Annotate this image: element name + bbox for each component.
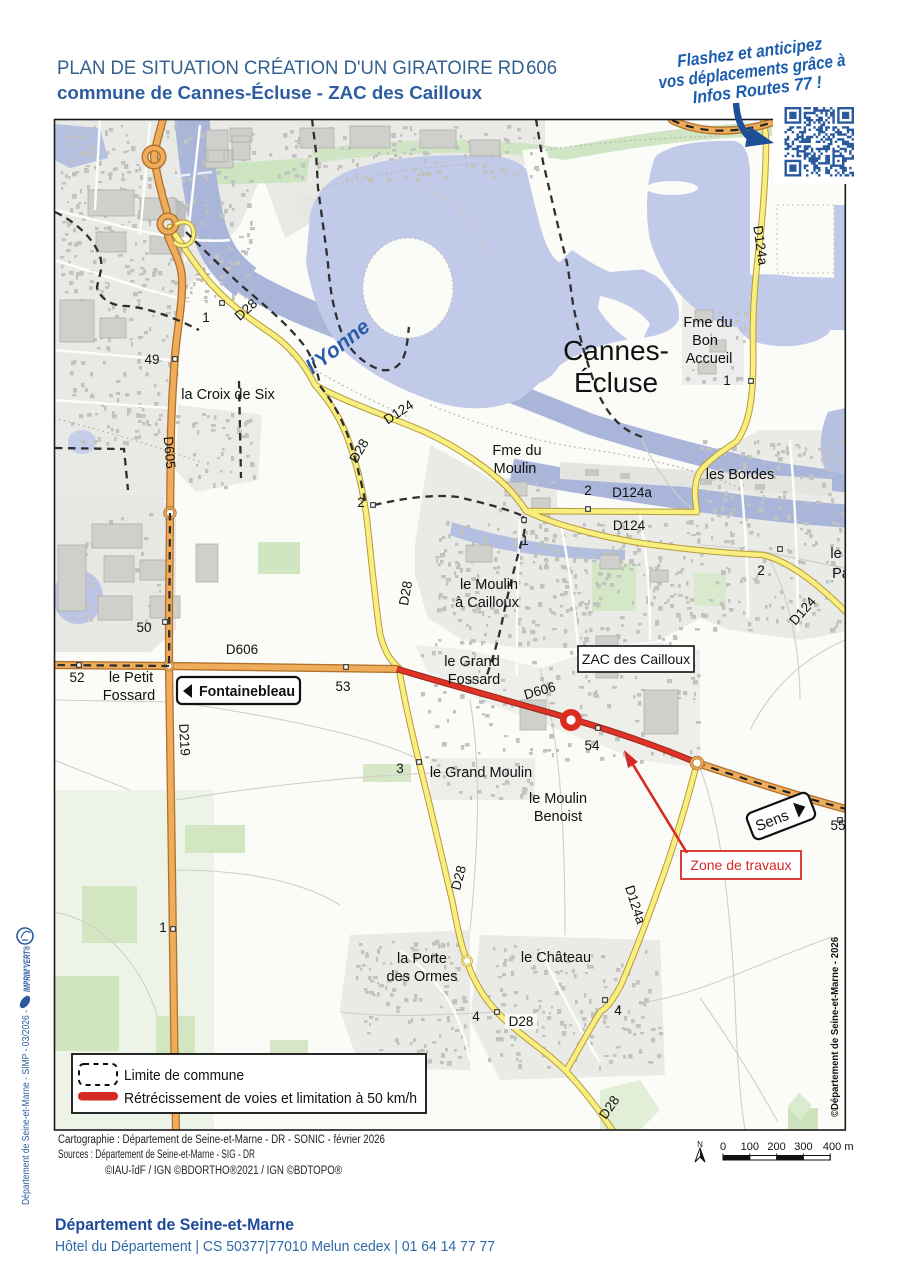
- svg-text:53: 53: [335, 679, 350, 694]
- svg-text:ZAC des Cailloux: ZAC des Cailloux: [582, 651, 690, 667]
- svg-text:200: 200: [767, 1141, 785, 1153]
- svg-text:Écluse: Écluse: [574, 367, 658, 398]
- svg-text:400 m: 400 m: [823, 1141, 854, 1153]
- svg-text:4: 4: [472, 1009, 480, 1024]
- svg-text:54: 54: [584, 738, 600, 753]
- svg-text:le: le: [830, 546, 841, 562]
- svg-text:le Moulin: le Moulin: [529, 791, 587, 807]
- svg-text:D124a: D124a: [612, 485, 652, 500]
- svg-text:Zone de travaux: Zone de travaux: [690, 857, 791, 873]
- svg-text:Cannes-: Cannes-: [563, 335, 669, 366]
- svg-text:Bon: Bon: [692, 333, 718, 349]
- svg-text:49: 49: [144, 352, 159, 367]
- svg-text:le Grand: le Grand: [444, 654, 500, 670]
- svg-text:Hôtel du Département | CS 5037: Hôtel du Département | CS 50377|77010 Me…: [55, 1239, 495, 1255]
- svg-text:Fontainebleau: Fontainebleau: [199, 683, 295, 700]
- svg-text:2: 2: [357, 495, 365, 510]
- svg-text:les Bordes: les Bordes: [706, 467, 775, 483]
- svg-text:PLAN DE SITUATION CRÉATION D'U: PLAN DE SITUATION CRÉATION D'UN GIRATOIR…: [57, 58, 557, 79]
- svg-text:Fossard: Fossard: [103, 688, 155, 704]
- svg-text:100: 100: [741, 1141, 759, 1153]
- svg-text:52: 52: [69, 670, 84, 685]
- svg-text:D606: D606: [226, 642, 258, 657]
- svg-text:55: 55: [830, 818, 845, 833]
- svg-text:4: 4: [614, 1003, 622, 1018]
- svg-text:300: 300: [794, 1141, 812, 1153]
- svg-text:Département de Seine-et-Marne: Département de Seine-et-Marne: [55, 1216, 294, 1234]
- svg-text:IMPRIM’VERT®: IMPRIM’VERT®: [22, 946, 32, 992]
- svg-text:commune de Cannes-Écluse - ZAC: commune de Cannes-Écluse - ZAC des Caill…: [57, 82, 482, 103]
- svg-text:la Porte: la Porte: [397, 951, 447, 967]
- svg-text:©Département de Seine-et-Marne: ©Département de Seine-et-Marne - 2026: [829, 937, 841, 1117]
- svg-text:D124: D124: [613, 518, 646, 533]
- svg-text:Rétrécissement de voies et lim: Rétrécissement de voies et limitation à …: [124, 1091, 417, 1107]
- svg-text:Cartographie : Département de: Cartographie : Département de Seine-et-M…: [58, 1134, 385, 1146]
- svg-text:2: 2: [757, 563, 765, 578]
- svg-text:le Moulin: le Moulin: [460, 577, 518, 593]
- svg-text:le Petit: le Petit: [109, 670, 153, 686]
- svg-text:1: 1: [202, 310, 210, 325]
- svg-text:D28: D28: [509, 1014, 534, 1029]
- svg-text:0: 0: [720, 1141, 726, 1153]
- svg-text:le Grand Moulin: le Grand Moulin: [430, 765, 532, 781]
- svg-text:Moulin: Moulin: [494, 461, 537, 477]
- svg-text:50: 50: [136, 620, 151, 635]
- svg-text:Fme du: Fme du: [683, 315, 732, 331]
- svg-text:Fme du: Fme du: [492, 443, 541, 459]
- svg-text:©IAU-îdF / IGN ©BDORTHO®2021 /: ©IAU-îdF / IGN ©BDORTHO®2021 / IGN ©BDTO…: [105, 1165, 342, 1177]
- svg-text:le Château: le Château: [521, 950, 591, 966]
- svg-text:des Ormes: des Ormes: [387, 969, 458, 985]
- svg-text:3: 3: [396, 761, 404, 776]
- svg-text:à Cailloux: à Cailloux: [455, 595, 519, 611]
- svg-text:Département de Seine-et-Marne: Département de Seine-et-Marne - SIMP - 0…: [20, 1010, 32, 1205]
- svg-text:D605: D605: [161, 436, 179, 469]
- svg-text:Benoist: Benoist: [534, 809, 582, 825]
- svg-text:1: 1: [723, 373, 731, 388]
- svg-text:1: 1: [521, 533, 529, 548]
- svg-text:1: 1: [159, 920, 167, 935]
- svg-text:Sources : Département de Seine: Sources : Département de Seine-et-Marne …: [58, 1149, 255, 1161]
- svg-text:Fossard: Fossard: [448, 672, 500, 688]
- svg-text:la Croix de Six: la Croix de Six: [181, 387, 275, 403]
- svg-text:2: 2: [584, 483, 592, 498]
- svg-text:Limite de commune: Limite de commune: [124, 1068, 244, 1084]
- svg-text:D219: D219: [176, 723, 193, 756]
- svg-text:Accueil: Accueil: [686, 351, 733, 367]
